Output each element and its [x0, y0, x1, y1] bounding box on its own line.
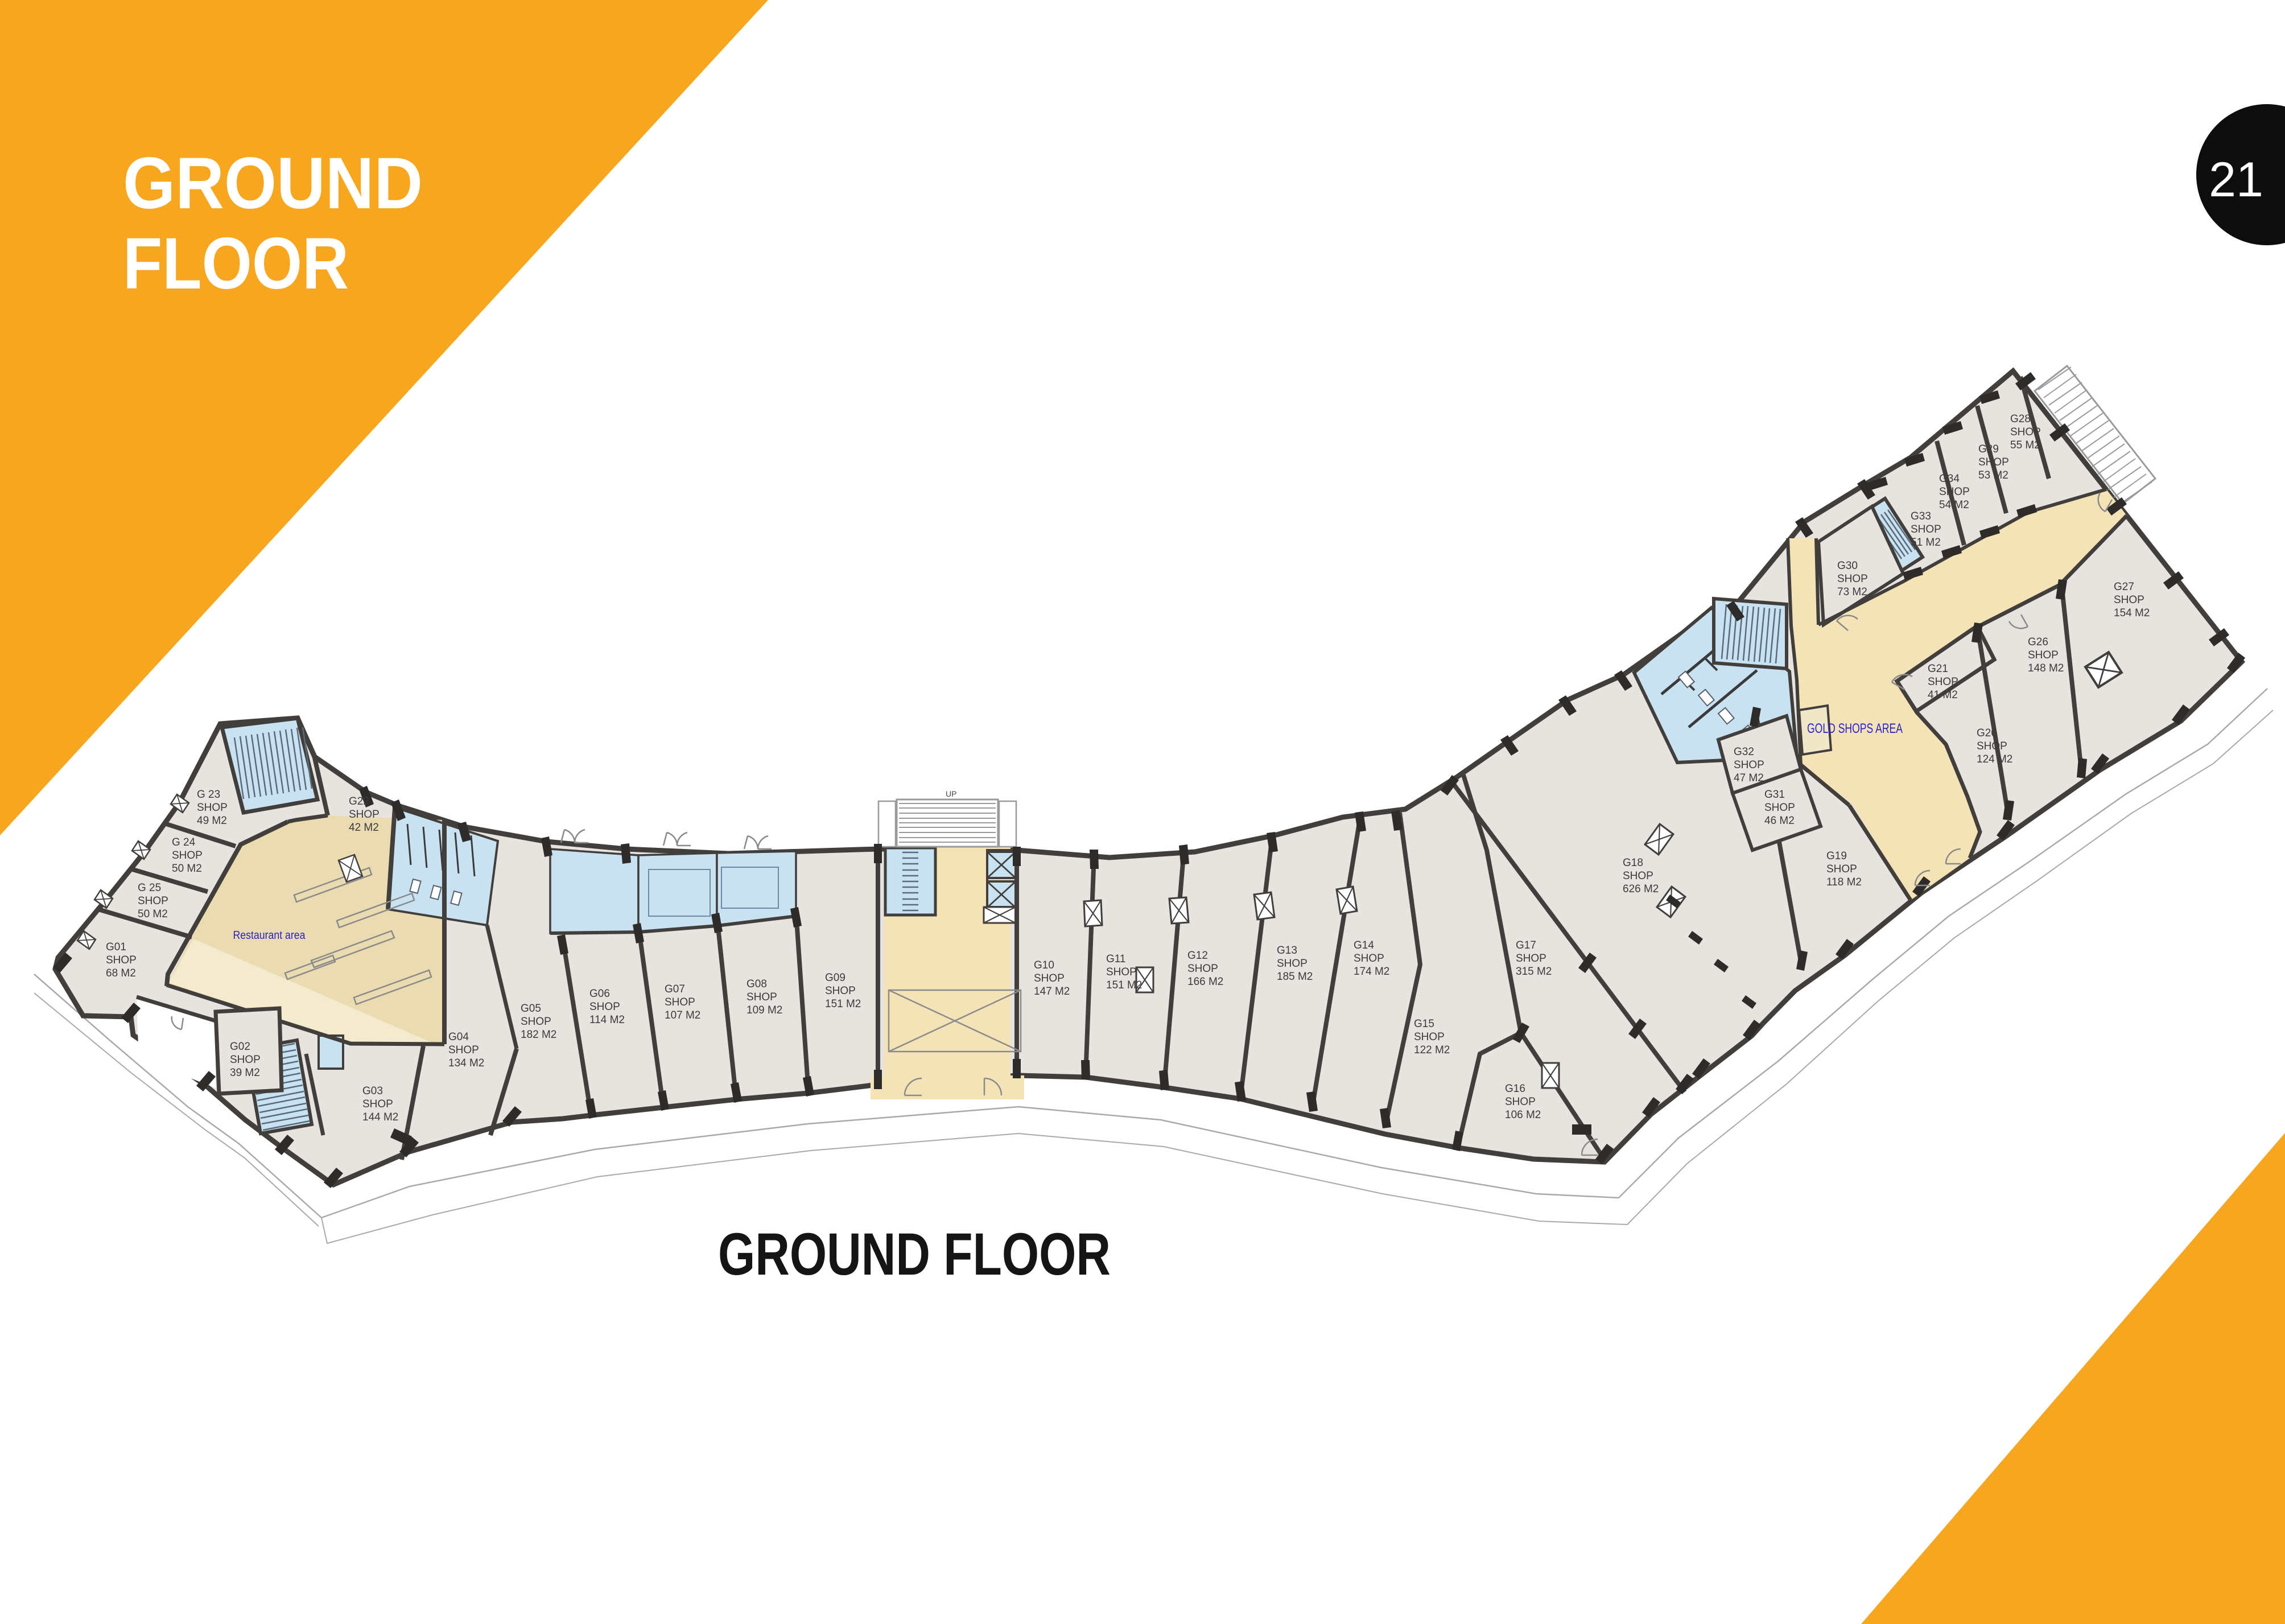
svg-text:GROUND: GROUND: [123, 143, 423, 224]
svg-text:GROUND FLOOR: GROUND FLOOR: [718, 1221, 1111, 1288]
svg-text:UP: UP: [946, 789, 956, 798]
svg-text:21: 21: [2209, 152, 2263, 207]
svg-text:GOLD SHOPS AREA: GOLD SHOPS AREA: [1807, 721, 1903, 736]
svg-text:Restaurant area: Restaurant area: [233, 929, 306, 942]
svg-text:FLOOR: FLOOR: [123, 223, 349, 304]
